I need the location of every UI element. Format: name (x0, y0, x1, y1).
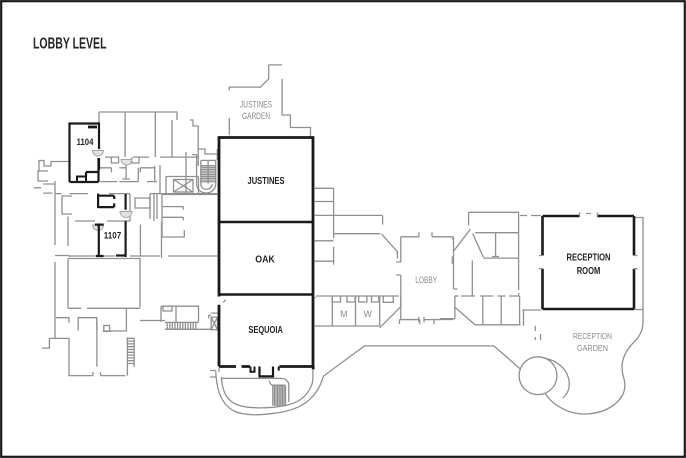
svg-text:1107: 1107 (104, 231, 122, 241)
svg-text:W: W (364, 309, 373, 319)
svg-text:1104: 1104 (77, 137, 94, 147)
svg-text:JUSTINES: JUSTINES (248, 176, 285, 187)
svg-text:GARDEN: GARDEN (242, 111, 270, 121)
svg-text:M: M (340, 309, 347, 319)
svg-text:JUSTINES: JUSTINES (240, 100, 272, 110)
svg-text:LOBBY: LOBBY (415, 275, 437, 285)
svg-text:GARDEN: GARDEN (577, 343, 608, 353)
svg-text:LOBBY LEVEL: LOBBY LEVEL (33, 36, 107, 53)
svg-text:RECEPTION: RECEPTION (567, 252, 611, 263)
svg-text:OAK: OAK (255, 254, 275, 265)
svg-text:RECEPTION: RECEPTION (573, 331, 612, 341)
svg-text:SEQUOIA: SEQUOIA (248, 325, 283, 336)
svg-text:ROOM: ROOM (577, 266, 601, 277)
